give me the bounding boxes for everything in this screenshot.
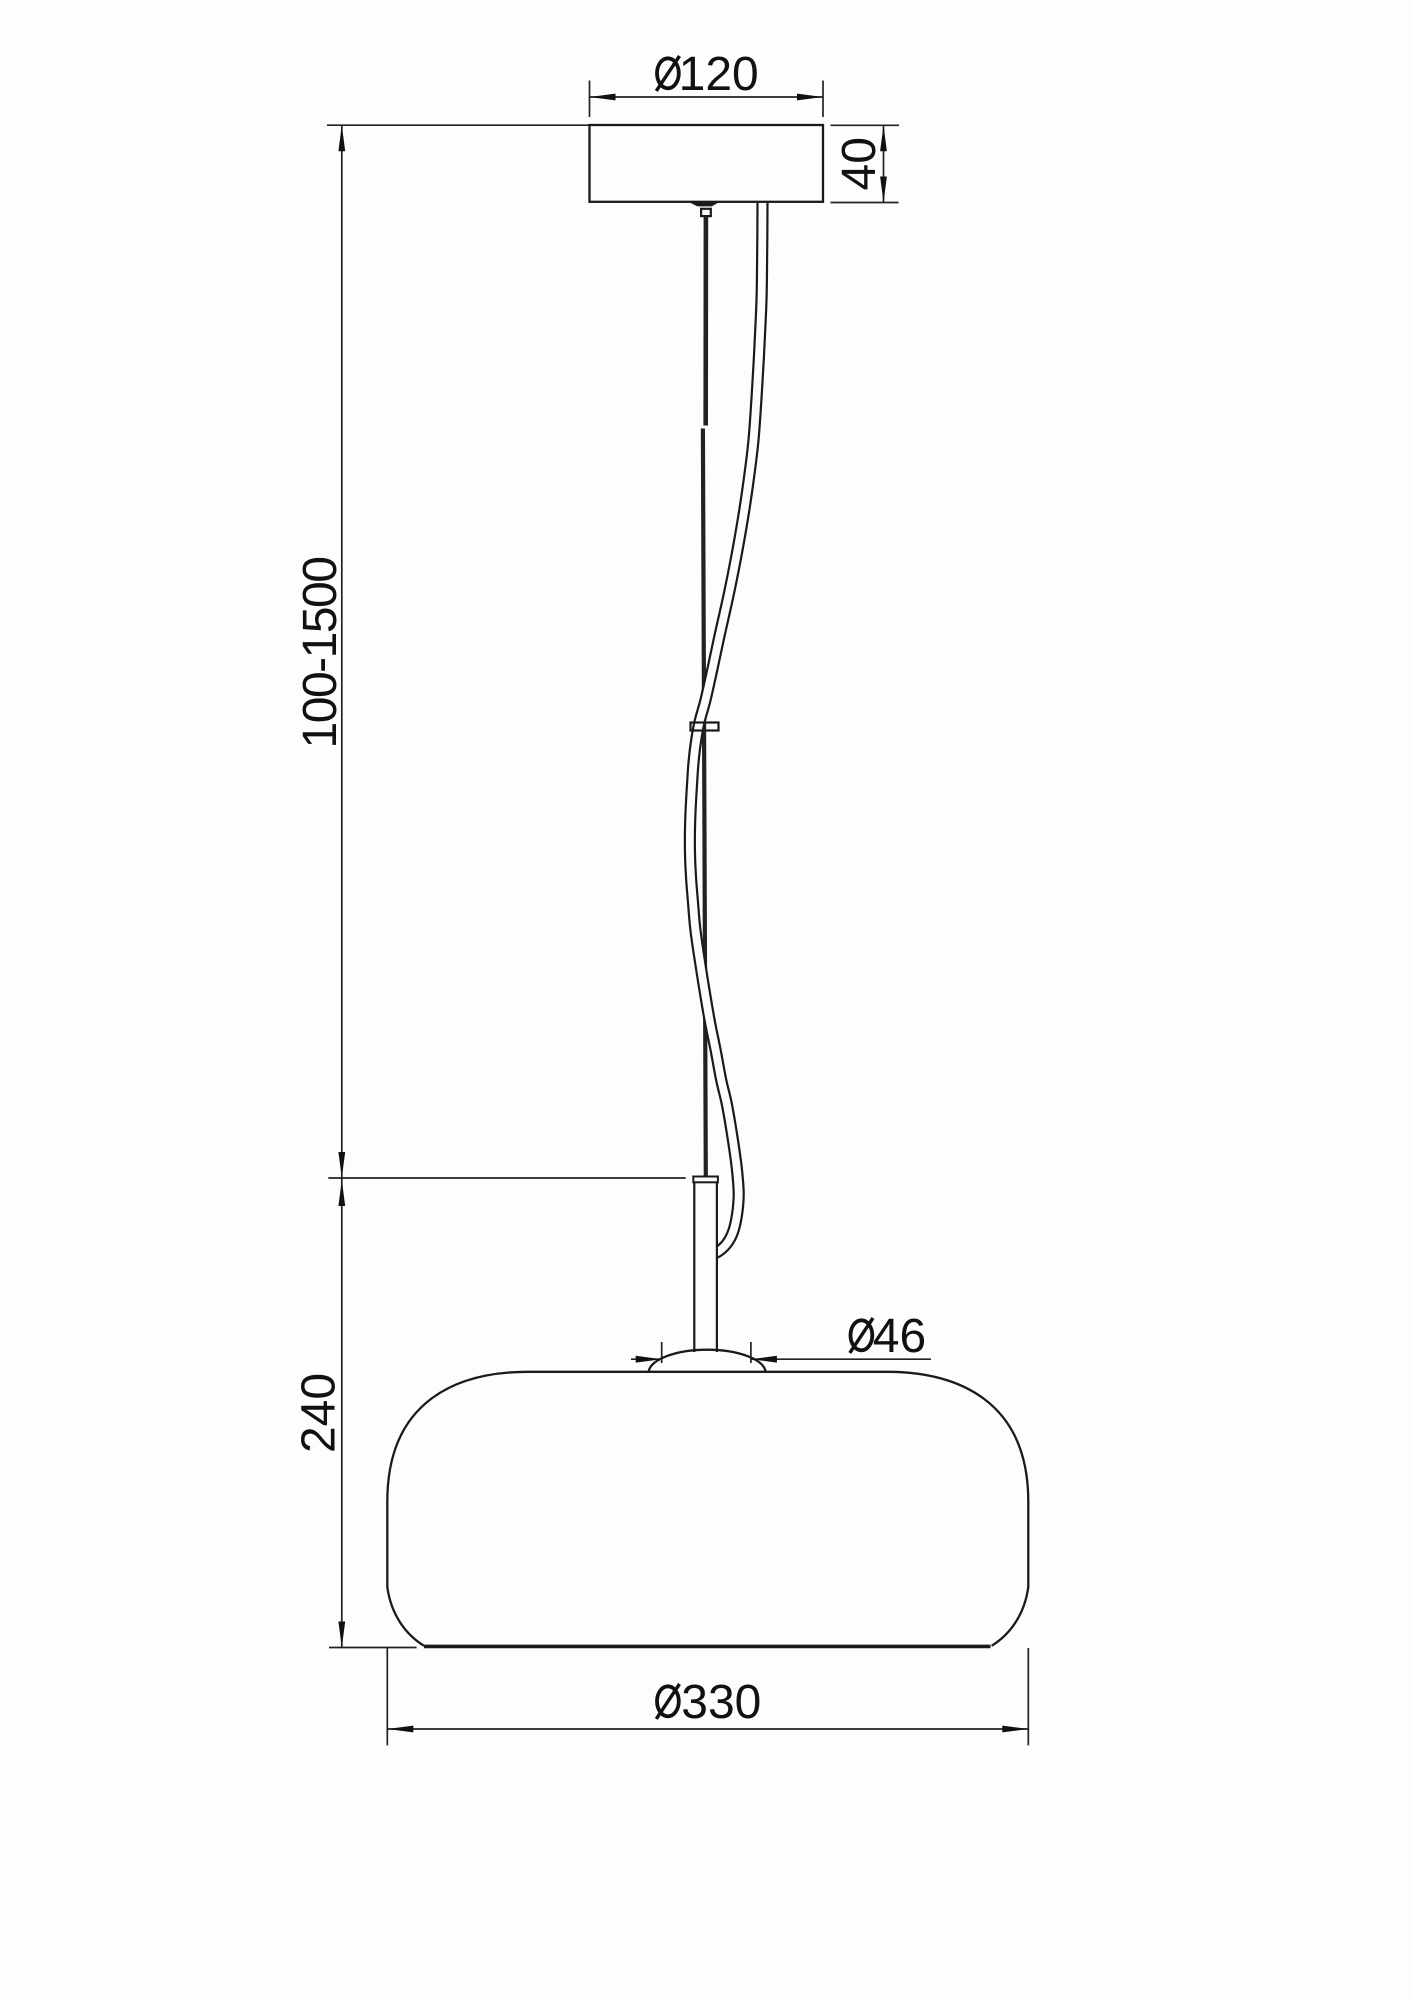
svg-text:240: 240: [293, 1373, 346, 1453]
svg-text:40: 40: [833, 137, 886, 190]
svg-text:46: 46: [873, 1310, 926, 1363]
svg-text:100-1500: 100-1500: [294, 558, 347, 749]
svg-text:120: 120: [679, 48, 759, 101]
svg-text:330: 330: [681, 1676, 761, 1729]
